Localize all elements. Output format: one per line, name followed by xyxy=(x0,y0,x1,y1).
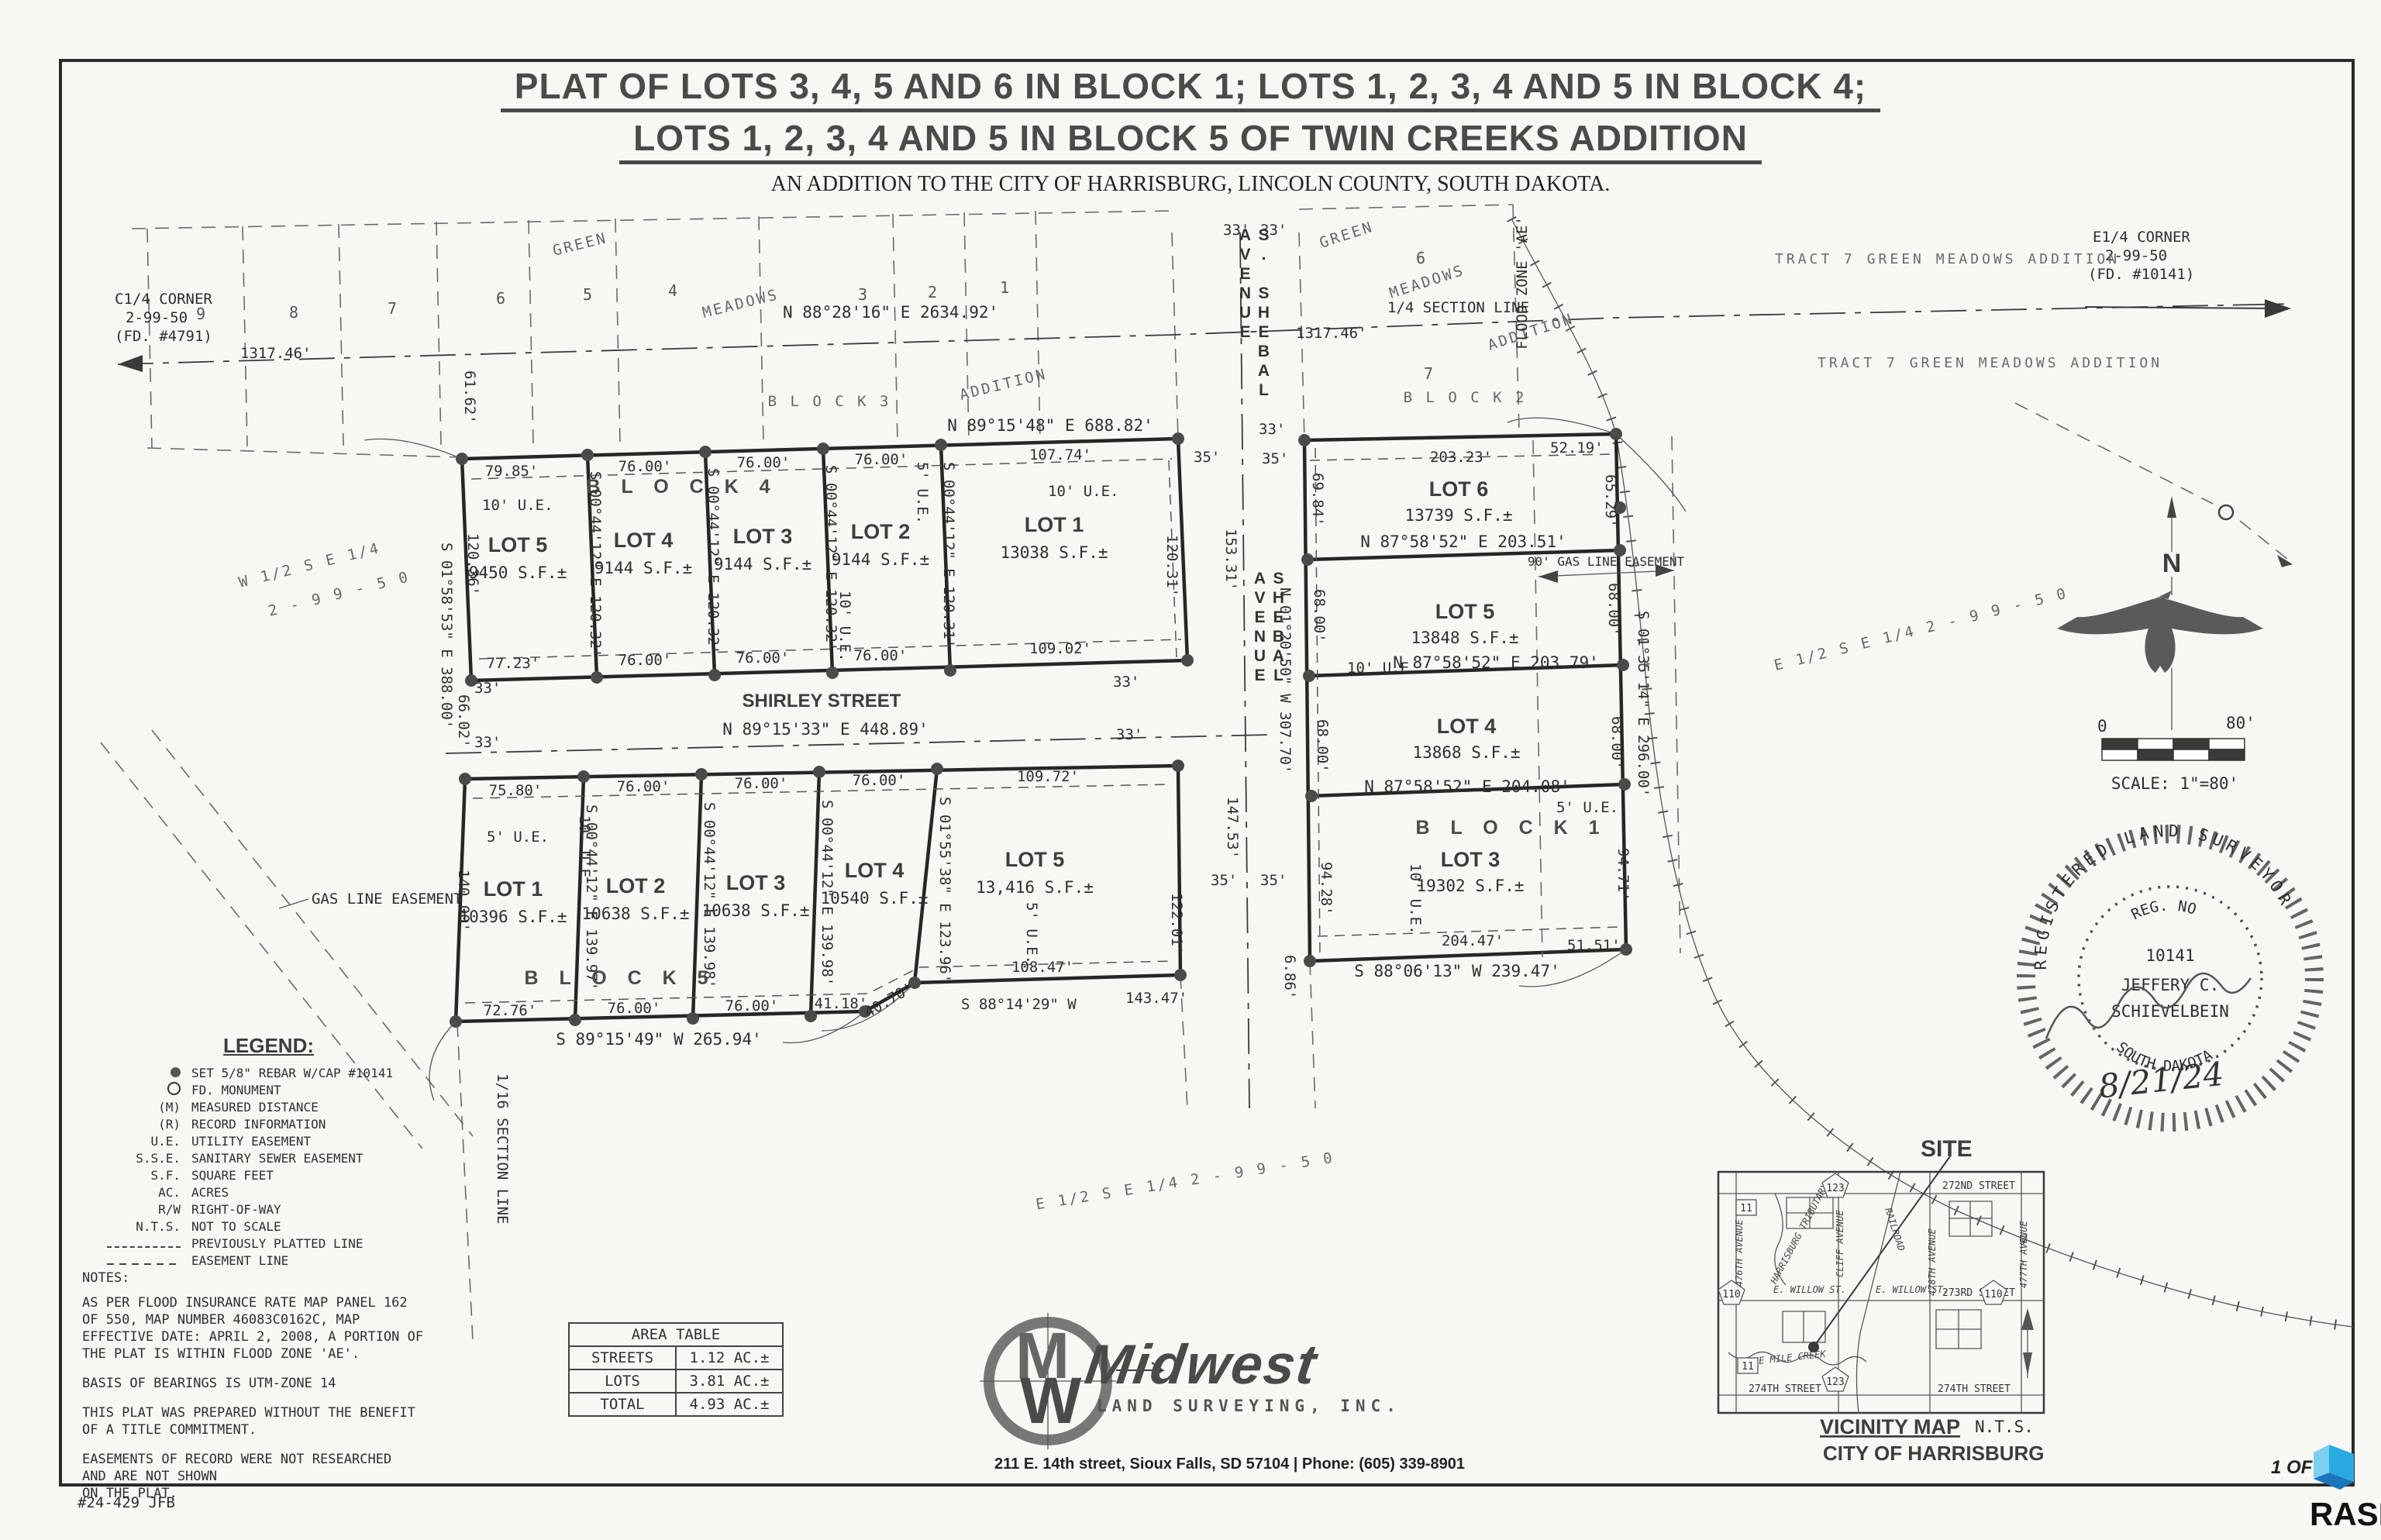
b4-dim: 77.23' xyxy=(487,655,540,672)
tract7-label-2: TRACT 7 GREEN MEADOWS ADDITION xyxy=(1818,355,2162,371)
b4-dim: 76.00' xyxy=(619,458,672,475)
b5-bottom-bearing: S 89°15'49" W 265.94' xyxy=(556,1030,762,1049)
gm-lot4: 4 xyxy=(668,281,677,300)
b5-lot4-area: 10540 S.F.± xyxy=(820,889,928,908)
b5-lot5-name: LOT 5 xyxy=(1005,848,1065,871)
rase-watermark: RASE xyxy=(2306,1443,2381,1540)
legend-sym: N.T.S. xyxy=(91,1219,191,1234)
street-272: 272ND STREET xyxy=(1942,1180,2015,1192)
quarter-dist-right: 1317.46' xyxy=(1296,325,1367,342)
b4-dim: 76.00' xyxy=(619,652,672,669)
shield-110b: 110 xyxy=(1984,1289,2002,1301)
note-line: THE PLAT IS WITHIN FLOOD ZONE 'AE'. xyxy=(82,1346,360,1362)
north-label: N xyxy=(2162,549,2182,578)
c14-corner-sec: 2-99-50 xyxy=(126,309,188,326)
dim-33: 33' xyxy=(474,734,501,751)
b5-lot2-area: 10638 S.F.± xyxy=(581,904,689,923)
shirley-street-name: SHIRLEY STREET xyxy=(743,691,901,711)
gm-block3: B L O C K 3 xyxy=(768,393,891,410)
ue-label: 5' U.E. xyxy=(1023,902,1040,964)
dim-6162: 61.62' xyxy=(461,370,478,424)
note-line: OF A TITLE COMMITMENT. xyxy=(82,1422,257,1438)
svg-text:W: W xyxy=(1020,1364,1082,1437)
gm-lot1: 1 xyxy=(1000,278,1009,297)
area-row-total: TOTAL 4.93 AC.± xyxy=(570,1394,782,1415)
north-arrow: N xyxy=(2057,496,2263,730)
b5-side-bearing: S 00°44'12" E 139.98' xyxy=(701,802,718,988)
note-line: OF 550, MAP NUMBER 46083C0162C, MAP xyxy=(82,1312,360,1328)
dim-14753: 147.53' xyxy=(1224,797,1241,859)
area-table-title: AREA TABLE xyxy=(570,1324,782,1347)
b1-edim: 94.71' xyxy=(1614,848,1632,901)
b4-lot4-area: 9144 S.F.± xyxy=(594,559,692,577)
legend-item: RECORD INFORMATION xyxy=(191,1117,326,1132)
ue-label: 10' U.E. xyxy=(1407,863,1424,935)
b1-lot3-area: 19302 S.F.± xyxy=(1416,877,1524,895)
plat-sheet: PLAT OF LOTS 3, 4, 5 AND 6 IN BLOCK 1; L… xyxy=(0,0,2381,1540)
area-val: 4.93 AC.± xyxy=(677,1394,782,1415)
vicinity-city: CITY OF HARRISBURG xyxy=(1823,1442,2045,1465)
ue-label: 5' U.E. xyxy=(1556,799,1618,816)
note-line: AND ARE NOT SHOWN xyxy=(82,1469,217,1484)
section-bearing: N 88°28'16" E 2634.92' xyxy=(783,303,998,322)
b4-lot1-name: LOT 1 xyxy=(1025,513,1084,536)
legend-sym: (M) xyxy=(91,1100,191,1115)
b5-lot2-name: LOT 2 xyxy=(606,874,666,897)
legend-sym: S.F. xyxy=(91,1168,191,1183)
note-line: EFFECTIVE DATE: APRIL 2, 2008, A PORTION… xyxy=(82,1329,423,1345)
block5-name: B L O C K 5 xyxy=(524,967,715,989)
b5-lot4-name: LOT 4 xyxy=(845,859,905,882)
area-val: 1.12 AC.± xyxy=(677,1347,782,1369)
b1-bottom-bearing: S 88°06'13" W 239.47' xyxy=(1354,962,1560,980)
b5-dim: 76.00' xyxy=(735,775,788,792)
shebal-avenue-label-mid: SHEBAL AVENUE xyxy=(1250,570,1287,748)
ue-label: 10' U.E. xyxy=(482,497,553,514)
firm-name: Midwest xyxy=(1081,1333,1321,1397)
shield-11: 11 xyxy=(1740,1203,1752,1214)
dim-33: 33' xyxy=(1116,726,1142,743)
dim-15331: 153.31' xyxy=(1222,529,1239,591)
legend-item: ACRES xyxy=(191,1185,229,1200)
notes-title: NOTES: xyxy=(82,1270,485,1287)
gm2-lot7: 7 xyxy=(1424,364,1433,383)
gm-lot5: 5 xyxy=(583,285,592,304)
shield-123: 123 xyxy=(1826,1183,1844,1194)
quarter-dist-left: 1317.46' xyxy=(240,345,312,362)
b5-dim: 41.18' xyxy=(815,995,868,1012)
ue-label: 10' U.E. xyxy=(1048,483,1119,500)
block4-name: B L O C K 4 xyxy=(586,476,777,498)
b4-lot1-area: 13038 S.F.± xyxy=(1000,543,1108,562)
b1-wdim: 69.84' xyxy=(1309,473,1326,526)
gm-meadows-right: MEADOWS xyxy=(1387,262,1467,302)
easement-line-sample xyxy=(107,1263,181,1265)
quarter-section-label: 1/4 SECTION LINE xyxy=(1387,299,1529,316)
b1-bearing2: N 87°58'52" E 203.79' xyxy=(1393,653,1599,672)
b4-lot2-name: LOT 2 xyxy=(851,520,911,543)
legend-item: EASEMENT LINE xyxy=(191,1253,288,1268)
dim-686: 6.86' xyxy=(1281,955,1298,999)
dim-33: 33' xyxy=(474,680,501,697)
legend-item: PREVIOUSLY PLATTED LINE xyxy=(191,1236,364,1251)
job-number: #24-429 JFB xyxy=(78,1494,175,1511)
rase-watermark-text: RASE xyxy=(2310,1496,2381,1533)
b5-dim: 109.72' xyxy=(1017,768,1079,785)
flood-zone-label: FLOOD ZONE 'AE' xyxy=(1514,216,1531,350)
scale-label: SCALE: 1"=80' xyxy=(2111,774,2238,793)
note-line: THIS PLAT WAS PREPARED WITHOUT THE BENEF… xyxy=(82,1405,415,1421)
street-477: 477TH AVENUE xyxy=(2018,1221,2029,1288)
b5-dim: 75.80' xyxy=(489,782,543,799)
note-title-commitment: THIS PLAT WAS PREPARED WITHOUT THE BENEF… xyxy=(82,1404,485,1438)
b1-dim: 52.19' xyxy=(1550,439,1604,456)
street-476: 476TH AVENUE xyxy=(1734,1219,1745,1287)
b1-lot6-name: LOT 6 xyxy=(1429,477,1489,501)
shield-123b: 123 xyxy=(1826,1376,1844,1388)
street-274b: 274TH STREET xyxy=(1938,1383,2011,1395)
svg-text:REG. NO: REG. NO xyxy=(2128,897,2198,924)
note-bearings: BASIS OF BEARINGS IS UTM-ZONE 14 xyxy=(82,1375,485,1392)
shirley-bearing: N 89°15'33" E 448.89' xyxy=(722,720,929,739)
rase-cube-icon xyxy=(2306,1443,2381,1494)
gm-block2: B L O C K 2 xyxy=(1404,389,1527,406)
legend: LEGEND: SET 5/8" REBAR W/CAP #10141 FD. … xyxy=(91,1034,494,1269)
vicinity-north-arrow xyxy=(2021,1308,2034,1378)
shebal-avenue-label-top: S. SHEBAL AVENUE xyxy=(1235,226,1273,474)
b1-lot4-area: 13868 S.F.± xyxy=(1412,743,1520,762)
b5-dim: 76.00' xyxy=(853,772,906,789)
stamp-regno: 10141 xyxy=(2145,946,2194,965)
b4-lot4-name: LOT 4 xyxy=(614,529,674,552)
dim-6602: 66.02' xyxy=(455,694,472,748)
legend-item: NOT TO SCALE xyxy=(191,1219,281,1234)
note-line: AS PER FLOOD INSURANCE RATE MAP PANEL 16… xyxy=(82,1295,408,1311)
gm-lot7: 7 xyxy=(388,299,397,318)
e14-corner-fd: (FD. #10141) xyxy=(2088,266,2194,283)
b5-lot1-name: LOT 1 xyxy=(484,877,543,901)
shield-110: 110 xyxy=(1722,1289,1740,1301)
b1-dim: 204.47' xyxy=(1442,932,1504,949)
vicinity-nts: N.T.S. xyxy=(1975,1418,2034,1436)
note-line: EASEMENTS OF RECORD WERE NOT RESEARCHED xyxy=(82,1452,391,1467)
legend-sym: S.S.E. xyxy=(91,1151,191,1166)
ue-label: 5' U.E. xyxy=(487,829,549,846)
vicinity-caption: VICINITY MAP xyxy=(1820,1415,1960,1438)
b1-lot5-area: 13848 S.F.± xyxy=(1411,629,1518,647)
gm-addition-left: ADDITION xyxy=(958,366,1049,404)
legend-sym: (R) xyxy=(91,1117,191,1132)
site-label: SITE xyxy=(1921,1136,1973,1162)
b5-lot5-area: 13,416 S.F.± xyxy=(976,878,1094,897)
block1-name: B L O C K 1 xyxy=(1415,817,1607,839)
street-274: 274TH STREET xyxy=(1749,1383,1821,1395)
b5-lot3-area: 10638 S.F.± xyxy=(701,901,809,920)
e-half-label-mid: E 1/2 S E 1/4 2 - 9 9 - 5 0 xyxy=(1035,1149,1336,1214)
street-cliff: CLIFF AVENUE xyxy=(1835,1210,1845,1277)
e-half-label-right: E 1/2 S E 1/4 2 - 9 9 - 5 0 xyxy=(1773,584,2070,674)
b1-bearing3: N 87°58'52" E 204.08' xyxy=(1364,777,1570,796)
e14-corner-label: E1/4 CORNER xyxy=(2093,229,2190,246)
gas-easement-90: 90' GAS LINE EASEMENT xyxy=(1528,554,1685,569)
stamp-name1: JEFFERY C. xyxy=(2121,976,2219,994)
b5-dim: 40.70' xyxy=(862,980,916,1021)
legend-title: LEGEND: xyxy=(223,1034,494,1058)
dim-14347: 143.47' xyxy=(1125,990,1187,1007)
b5-dim: 72.76' xyxy=(484,1002,537,1019)
sixteenth-section-label: 1/16 SECTION LINE xyxy=(494,1073,511,1224)
gm2-lot6: 6 xyxy=(1416,249,1425,267)
b4-lot5-area: 9450 S.F.± xyxy=(469,563,567,582)
gm-meadows-left: MEADOWS xyxy=(701,286,780,322)
b4-lot3-name: LOT 3 xyxy=(733,525,793,548)
b1-wdim: 94.28' xyxy=(1318,862,1335,915)
stamp-reg: REG. NO xyxy=(2128,897,2198,924)
b1-wdim: 68.00' xyxy=(1314,719,1331,773)
dim-10847: 108.47' xyxy=(1011,959,1073,976)
b5-dim: 76.00' xyxy=(725,997,779,1015)
dim-12201: 122.01' xyxy=(1168,893,1185,955)
gm-lot3: 3 xyxy=(858,285,867,304)
block4-top-bearing: N 89°15'48" E 688.82' xyxy=(947,416,1153,435)
b4-dim: 76.00' xyxy=(736,649,790,667)
legend-item: MEASURED DISTANCE xyxy=(191,1100,319,1115)
west-line-bearing: S 01°58'53" E 388.00' xyxy=(438,543,455,729)
scale-zero: 0 xyxy=(2097,717,2107,736)
b4-dim: 107.74' xyxy=(1029,446,1091,463)
b5-side-bearing: S 00°44'12" E 139.97' xyxy=(583,804,600,990)
ue-label: 10' U.E. xyxy=(836,591,853,662)
gm-green-right: GREEN xyxy=(1318,219,1376,252)
ue-label: 5' U.E. xyxy=(914,462,931,524)
b4-lot2-area: 9144 S.F.± xyxy=(832,550,929,569)
tributary-label: HARRISBURG TRIBUTARY xyxy=(1768,1181,1831,1287)
c14-corner-fd: (FD. #4791) xyxy=(115,328,212,345)
legend-sym: R/W xyxy=(91,1202,191,1217)
legend-sym: U.E. xyxy=(91,1134,191,1149)
gm-addition-right: ADDITION xyxy=(1486,310,1576,354)
scale-bar: 0 80' SCALE: 1"=80' xyxy=(2097,714,2255,793)
rebar-dot-icon xyxy=(171,1067,181,1077)
b5-lot1-area: 10396 S.F.± xyxy=(459,908,567,926)
b4-dim: 79.85' xyxy=(485,463,539,480)
previously-platted-line-sample xyxy=(107,1245,181,1248)
monument-circle-icon xyxy=(167,1082,181,1095)
legend-item: RIGHT-OF-WAY xyxy=(191,1202,281,1217)
area-row-streets: STREETS 1.12 AC.± xyxy=(570,1347,782,1370)
gm-green-left: GREEN xyxy=(551,229,609,260)
street-478: 478TH AVENUE xyxy=(1927,1228,1938,1296)
note-flood: AS PER FLOOD INSURANCE RATE MAP PANEL 16… xyxy=(82,1294,485,1363)
dim-33: 33' xyxy=(1113,674,1139,691)
b4-dim: 76.00' xyxy=(854,647,908,664)
dim-35: 35' xyxy=(1211,872,1237,889)
vicinity-map: SITE 272ND STREET 273RD STREET 274TH STR… xyxy=(1718,1136,2045,1465)
legend-item: UTILITY EASEMENT xyxy=(191,1134,311,1149)
b4-lot5-name: LOT 5 xyxy=(488,533,548,556)
dim-35: 35' xyxy=(1260,872,1287,889)
dim-12031: 120.31' xyxy=(1163,535,1180,597)
firm-tagline: LAND SURVEYING, INC. xyxy=(1097,1397,1401,1415)
area-row-lots: LOTS 3.81 AC.± xyxy=(570,1370,782,1394)
b5-side-bearing: S 01°55'38" E 123.96' xyxy=(936,797,953,983)
b1-wdim: 68.00' xyxy=(1311,589,1328,643)
b4-lot3-area: 9144 S.F.± xyxy=(714,555,811,574)
b4-dim: 76.00' xyxy=(737,454,791,471)
b1-lot3-name: LOT 3 xyxy=(1441,848,1501,871)
firm-address: 211 E. 14th street, Sioux Falls, SD 5710… xyxy=(994,1456,1465,1473)
dim-35: 35' xyxy=(1194,449,1220,466)
b1-dim: 203.23' xyxy=(1430,449,1492,466)
legend-sym: AC. xyxy=(91,1185,191,1200)
b1-edim: 68.00' xyxy=(1608,716,1625,770)
area-table: AREA TABLE STREETS 1.12 AC.± LOTS 3.81 A… xyxy=(568,1322,784,1417)
b1-edim: 68.00' xyxy=(1605,583,1622,636)
legend-item: SQUARE FEET xyxy=(191,1168,274,1183)
area-key: TOTAL xyxy=(570,1394,677,1415)
area-val: 3.81 AC.± xyxy=(677,1370,782,1392)
b5-dim: 76.00' xyxy=(608,1000,661,1017)
shield-11b: 11 xyxy=(1742,1361,1754,1373)
street-willow-w: E. WILLOW ST. xyxy=(1773,1284,1846,1295)
b1-bearing1: N 87°58'52" E 203.51' xyxy=(1360,532,1566,551)
notes: NOTES: AS PER FLOOD INSURANCE RATE MAP P… xyxy=(82,1270,485,1514)
tract7-label-1: TRACT 7 GREEN MEADOWS ADDITION xyxy=(1775,251,2120,267)
b5-dim: 76.00' xyxy=(617,778,670,795)
scale-eighty: 80' xyxy=(2226,714,2255,732)
b5-bottom-bearing2: S 88°14'29" W xyxy=(961,996,1077,1013)
b1-east-bearing: S 01°35'14" E 296.00' xyxy=(1635,611,1652,797)
b1-dim: 51.51' xyxy=(1567,937,1621,954)
b4-dim: 109.02' xyxy=(1029,640,1091,657)
gm-lot9: 9 xyxy=(196,305,205,323)
b1-lot4-name: LOT 4 xyxy=(1437,715,1497,738)
b1-lot6-area: 13739 S.F.± xyxy=(1404,506,1512,525)
area-key: STREETS xyxy=(570,1347,677,1369)
b4-side-bearing: S 00°44'12" E 120.31' xyxy=(940,462,957,648)
legend-item: SET 5/8" REBAR W/CAP #10141 xyxy=(191,1066,393,1080)
b5-lot3-name: LOT 3 xyxy=(726,871,786,894)
gm-lot6: 6 xyxy=(496,289,505,308)
b4-dim: 76.00' xyxy=(855,451,908,468)
goose-icon xyxy=(2057,591,2263,673)
legend-item: FD. MONUMENT xyxy=(191,1083,281,1097)
area-key: LOTS xyxy=(570,1370,677,1392)
b1-lot5-name: LOT 5 xyxy=(1435,600,1495,623)
surveyor-stamp: REGISTERED LAND SURVEYOR REG. NO 10141 J… xyxy=(2026,822,2314,1122)
stamp-name2: SCHIEVELBEIN xyxy=(2111,1002,2229,1021)
stamp-date: 8/21/24 xyxy=(2097,1055,2225,1106)
gas-easement-label: GAS LINE EASEMENT xyxy=(312,891,462,908)
legend-item: SANITARY SEWER EASEMENT xyxy=(191,1151,364,1166)
b1-dim: 65.29' xyxy=(1602,474,1619,528)
block5-labels: 75.80' 76.00' 76.00' 76.00' 109.72' 5' U… xyxy=(455,768,1187,1049)
gm-lot8: 8 xyxy=(289,303,298,322)
gm-lot2: 2 xyxy=(928,283,937,301)
